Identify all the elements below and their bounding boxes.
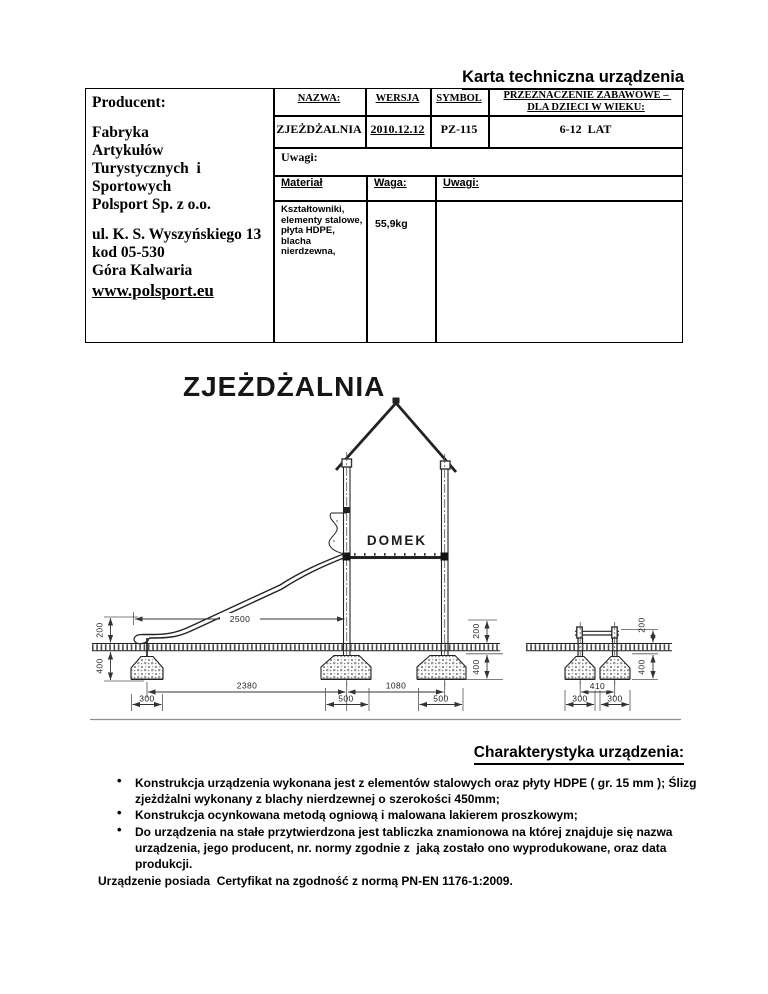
dim-side-footing2: 300 (607, 694, 622, 704)
platform (343, 553, 449, 561)
dim-side-height: 200 (637, 617, 647, 632)
dim-footing-post2: 500 (433, 694, 448, 704)
characteristics-title: Charakterystyka urządzenia: (474, 744, 684, 765)
dim-footing-slide: 300 (139, 694, 154, 704)
dim-left-height: 200 (95, 622, 105, 637)
house-posts (344, 452, 449, 687)
dim-side-footing-depth: 400 (637, 659, 647, 674)
dim-side-post-spacing: 410 (590, 681, 605, 691)
side-footings (565, 657, 630, 680)
side-view: 200 400 410 300 300 (526, 617, 672, 711)
dim-right-height: 200 (471, 623, 481, 638)
dim-right-footing-depth: 400 (471, 659, 481, 674)
certificate-note: Urządzenie posiada Certyfikat na zgodnoś… (98, 874, 513, 888)
bullet-icon: • (117, 773, 122, 788)
bullet-icon: • (117, 805, 122, 820)
house-label: DOMEK (367, 533, 427, 548)
characteristics-bullet: Konstrukcja urządzenia wykonana jest z e… (135, 775, 701, 807)
ground-line (92, 644, 500, 651)
characteristics-bullet: Konstrukcja ocynkowana metodą ogniową i … (135, 807, 701, 823)
bullet-icon: • (117, 822, 122, 837)
dim-left-footing-depth: 400 (95, 658, 105, 673)
house-roof (336, 398, 456, 473)
dim-span-slide-house: 2380 (237, 681, 258, 691)
side-ground-line (526, 644, 672, 651)
main-view: 2500 200 400 200 400 2380 1080 300 500 5… (92, 398, 503, 712)
dim-side-footing1: 300 (572, 694, 587, 704)
footings (131, 656, 466, 680)
dim-span-house-posts: 1080 (386, 681, 407, 691)
characteristics-bullet: Do urządzenia na stałe przytwierdzona je… (135, 824, 701, 872)
dim-footing-post1: 500 (338, 694, 353, 704)
dim-slide-length: 2500 (230, 614, 251, 624)
